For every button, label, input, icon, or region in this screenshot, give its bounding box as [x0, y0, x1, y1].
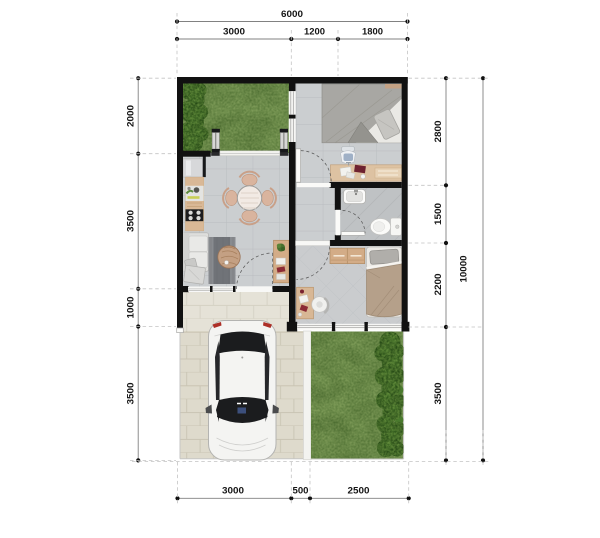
- svg-text:1200: 1200: [304, 27, 325, 38]
- svg-text:2500: 2500: [348, 486, 370, 497]
- svg-text:1500: 1500: [433, 203, 444, 225]
- svg-text:3500: 3500: [126, 383, 137, 405]
- svg-text:3500: 3500: [126, 210, 137, 232]
- svg-text:2800: 2800: [433, 121, 444, 143]
- svg-text:2000: 2000: [126, 105, 137, 127]
- svg-text:1800: 1800: [362, 27, 383, 38]
- svg-text:3500: 3500: [433, 383, 444, 405]
- svg-text:10000: 10000: [459, 256, 470, 283]
- svg-text:2200: 2200: [433, 274, 444, 296]
- svg-text:3000: 3000: [222, 486, 244, 497]
- svg-text:500: 500: [293, 486, 309, 497]
- svg-text:3000: 3000: [223, 27, 245, 38]
- svg-text:6000: 6000: [281, 9, 303, 20]
- svg-text:1000: 1000: [126, 297, 137, 319]
